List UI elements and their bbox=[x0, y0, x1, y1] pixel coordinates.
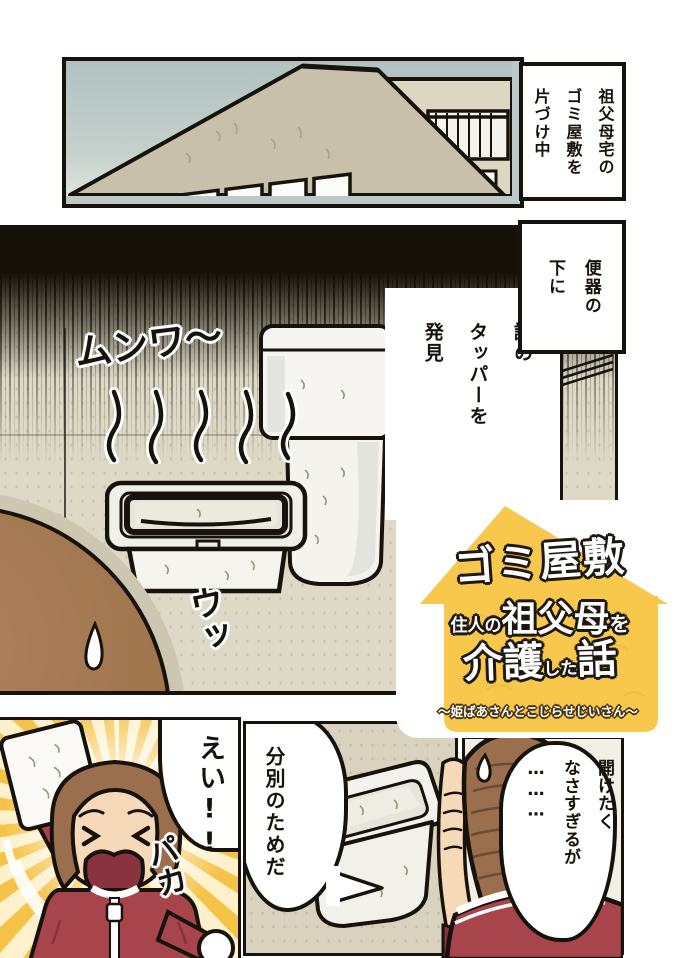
cuff bbox=[199, 931, 233, 958]
narration-toilet-text: 便器の 下に bbox=[536, 259, 607, 315]
panel-reluctant: 開けたく なさすぎるが ……… bbox=[462, 736, 624, 955]
house-drawing bbox=[66, 61, 512, 196]
manga-page: 祖父母宅の ゴミ屋敷を 片づけ中 bbox=[0, 0, 680, 958]
steam-squiggles-icon bbox=[100, 386, 310, 464]
balloon-tail bbox=[326, 864, 390, 908]
narration-top-text: 祖父母宅の ゴミ屋敷を 片づけ中 bbox=[525, 88, 621, 176]
logo-line2-prefix: 住人の bbox=[450, 616, 501, 636]
sweat-drop-icon bbox=[82, 621, 108, 673]
logo-line3-mid: した bbox=[543, 659, 578, 680]
zipper-pull bbox=[107, 904, 122, 921]
panel-open-action: えい!! パカ bbox=[0, 717, 241, 958]
logo-line2-main: 祖父母 bbox=[501, 599, 609, 640]
panel-house-exterior bbox=[62, 57, 524, 208]
series-logo: ゴミ屋敷 住人の祖父母を 介護した話 〜姫ばあさんとこじらせじいさん〜 bbox=[396, 500, 680, 738]
logo-line3-main2: 話 bbox=[576, 636, 618, 683]
logo-subtitle: 〜姫ばあさんとこじらせじいさん〜 bbox=[404, 701, 672, 720]
narration-box-toilet: 便器の 下に bbox=[518, 220, 626, 354]
speech-reason-text: 分別のためだ bbox=[262, 746, 286, 878]
panel-tupperware-closeup: 分別のためだ bbox=[243, 721, 458, 956]
logo-title-line2: 住人の祖父母を bbox=[416, 602, 664, 638]
logo-title-line3: 介護した話 bbox=[419, 638, 660, 686]
narration-box-top: 祖父母宅の ゴミ屋敷を 片づけ中 bbox=[519, 62, 626, 201]
speech-reluctant-text: 開けたく なさすぎるが ……… bbox=[519, 759, 621, 866]
logo-line3-main1: 介護 bbox=[462, 639, 544, 688]
shout-text: えい!! bbox=[194, 734, 224, 861]
shelf-lines bbox=[560, 353, 615, 398]
tupperware-drawing bbox=[105, 453, 310, 595]
logo-line2-suffix: を bbox=[610, 612, 630, 636]
